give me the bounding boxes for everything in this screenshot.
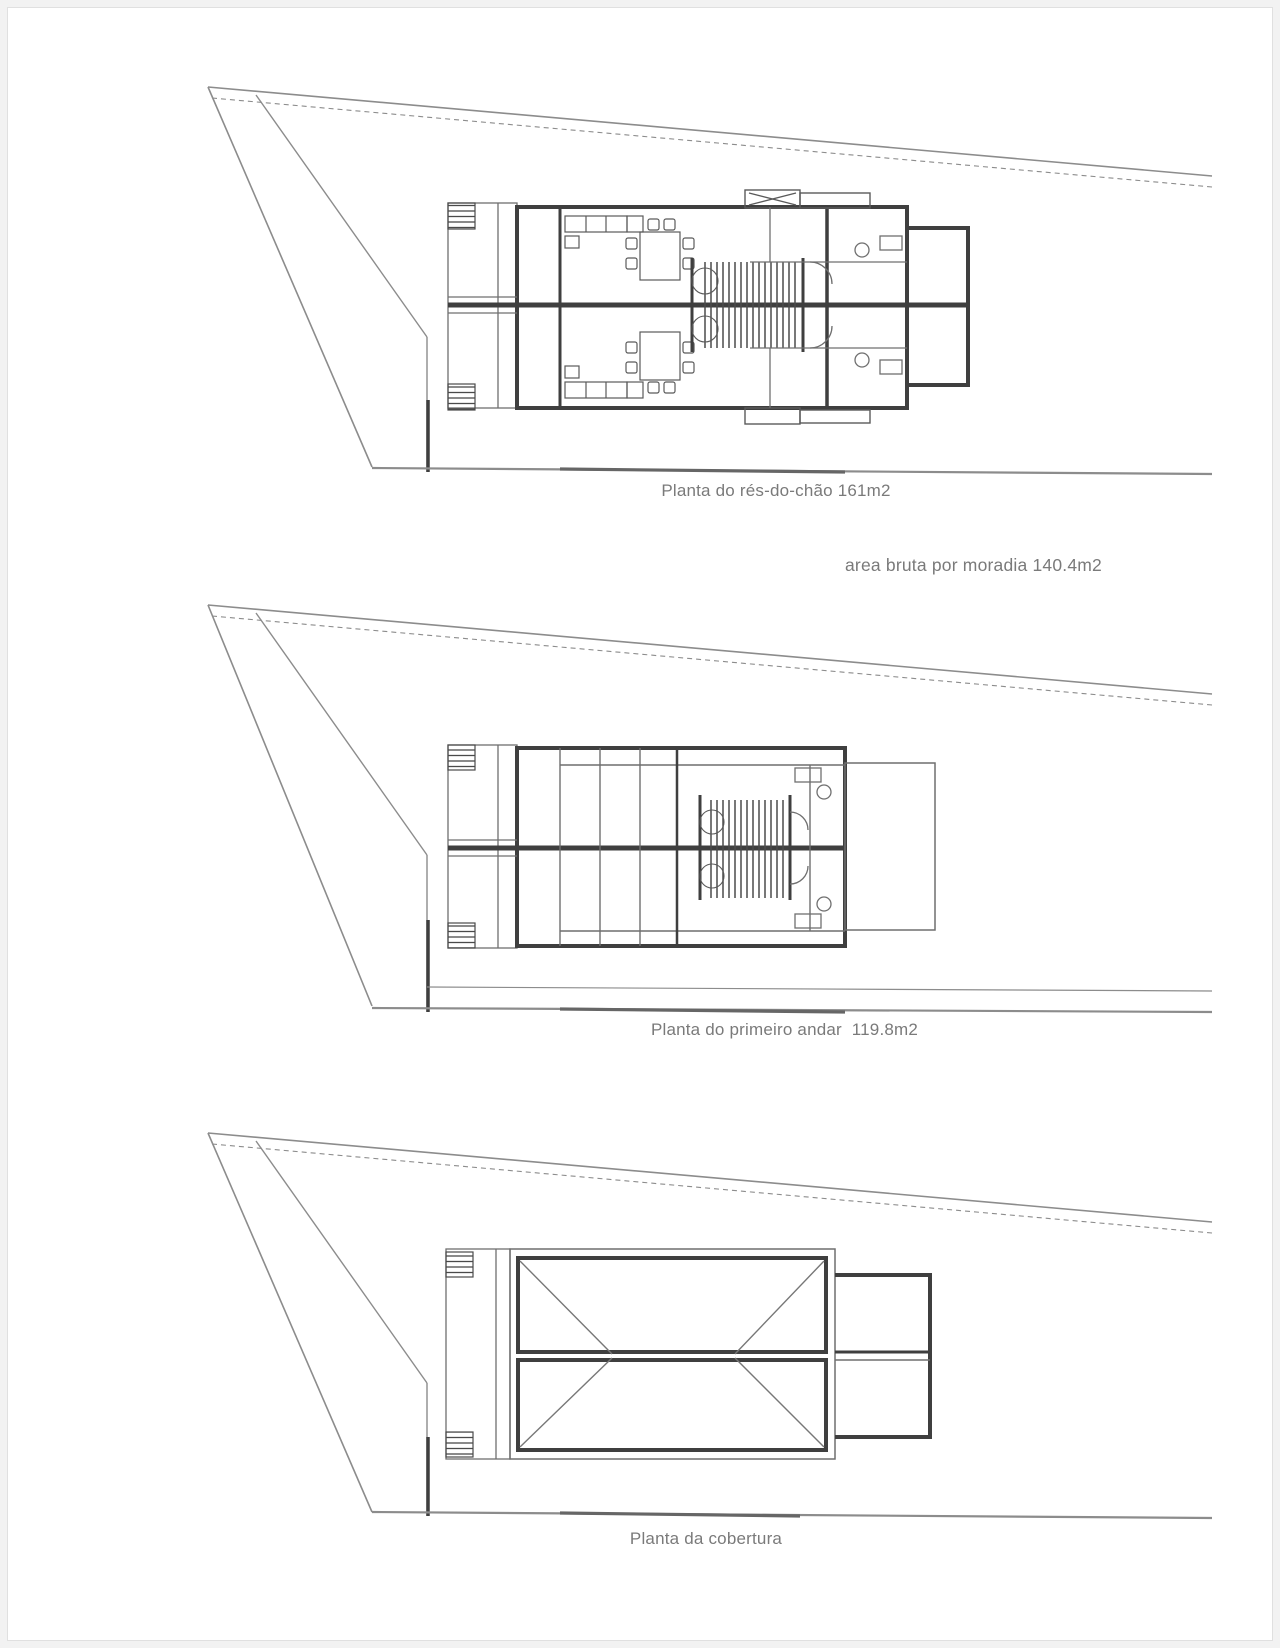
roof-caption: Planta da cobertura xyxy=(551,1529,861,1548)
ground-floor-caption: Planta do rés-do-chão 161m2 xyxy=(556,481,996,500)
roof-building xyxy=(446,1249,930,1459)
architectural-sheet: Planta do rés-do-chão 161m2 area bruta p… xyxy=(0,0,1280,1648)
first-floor-caption: Planta do primeiro andar 119.8m2 xyxy=(552,1020,1017,1039)
gross-area-annotation: area bruta por moradia 140.4m2 xyxy=(845,556,1225,575)
roof-site-boundary xyxy=(208,1133,1212,1518)
first-floor-building xyxy=(448,745,935,948)
plans-drawing xyxy=(0,0,1280,1648)
ground-floor-building xyxy=(448,190,968,424)
